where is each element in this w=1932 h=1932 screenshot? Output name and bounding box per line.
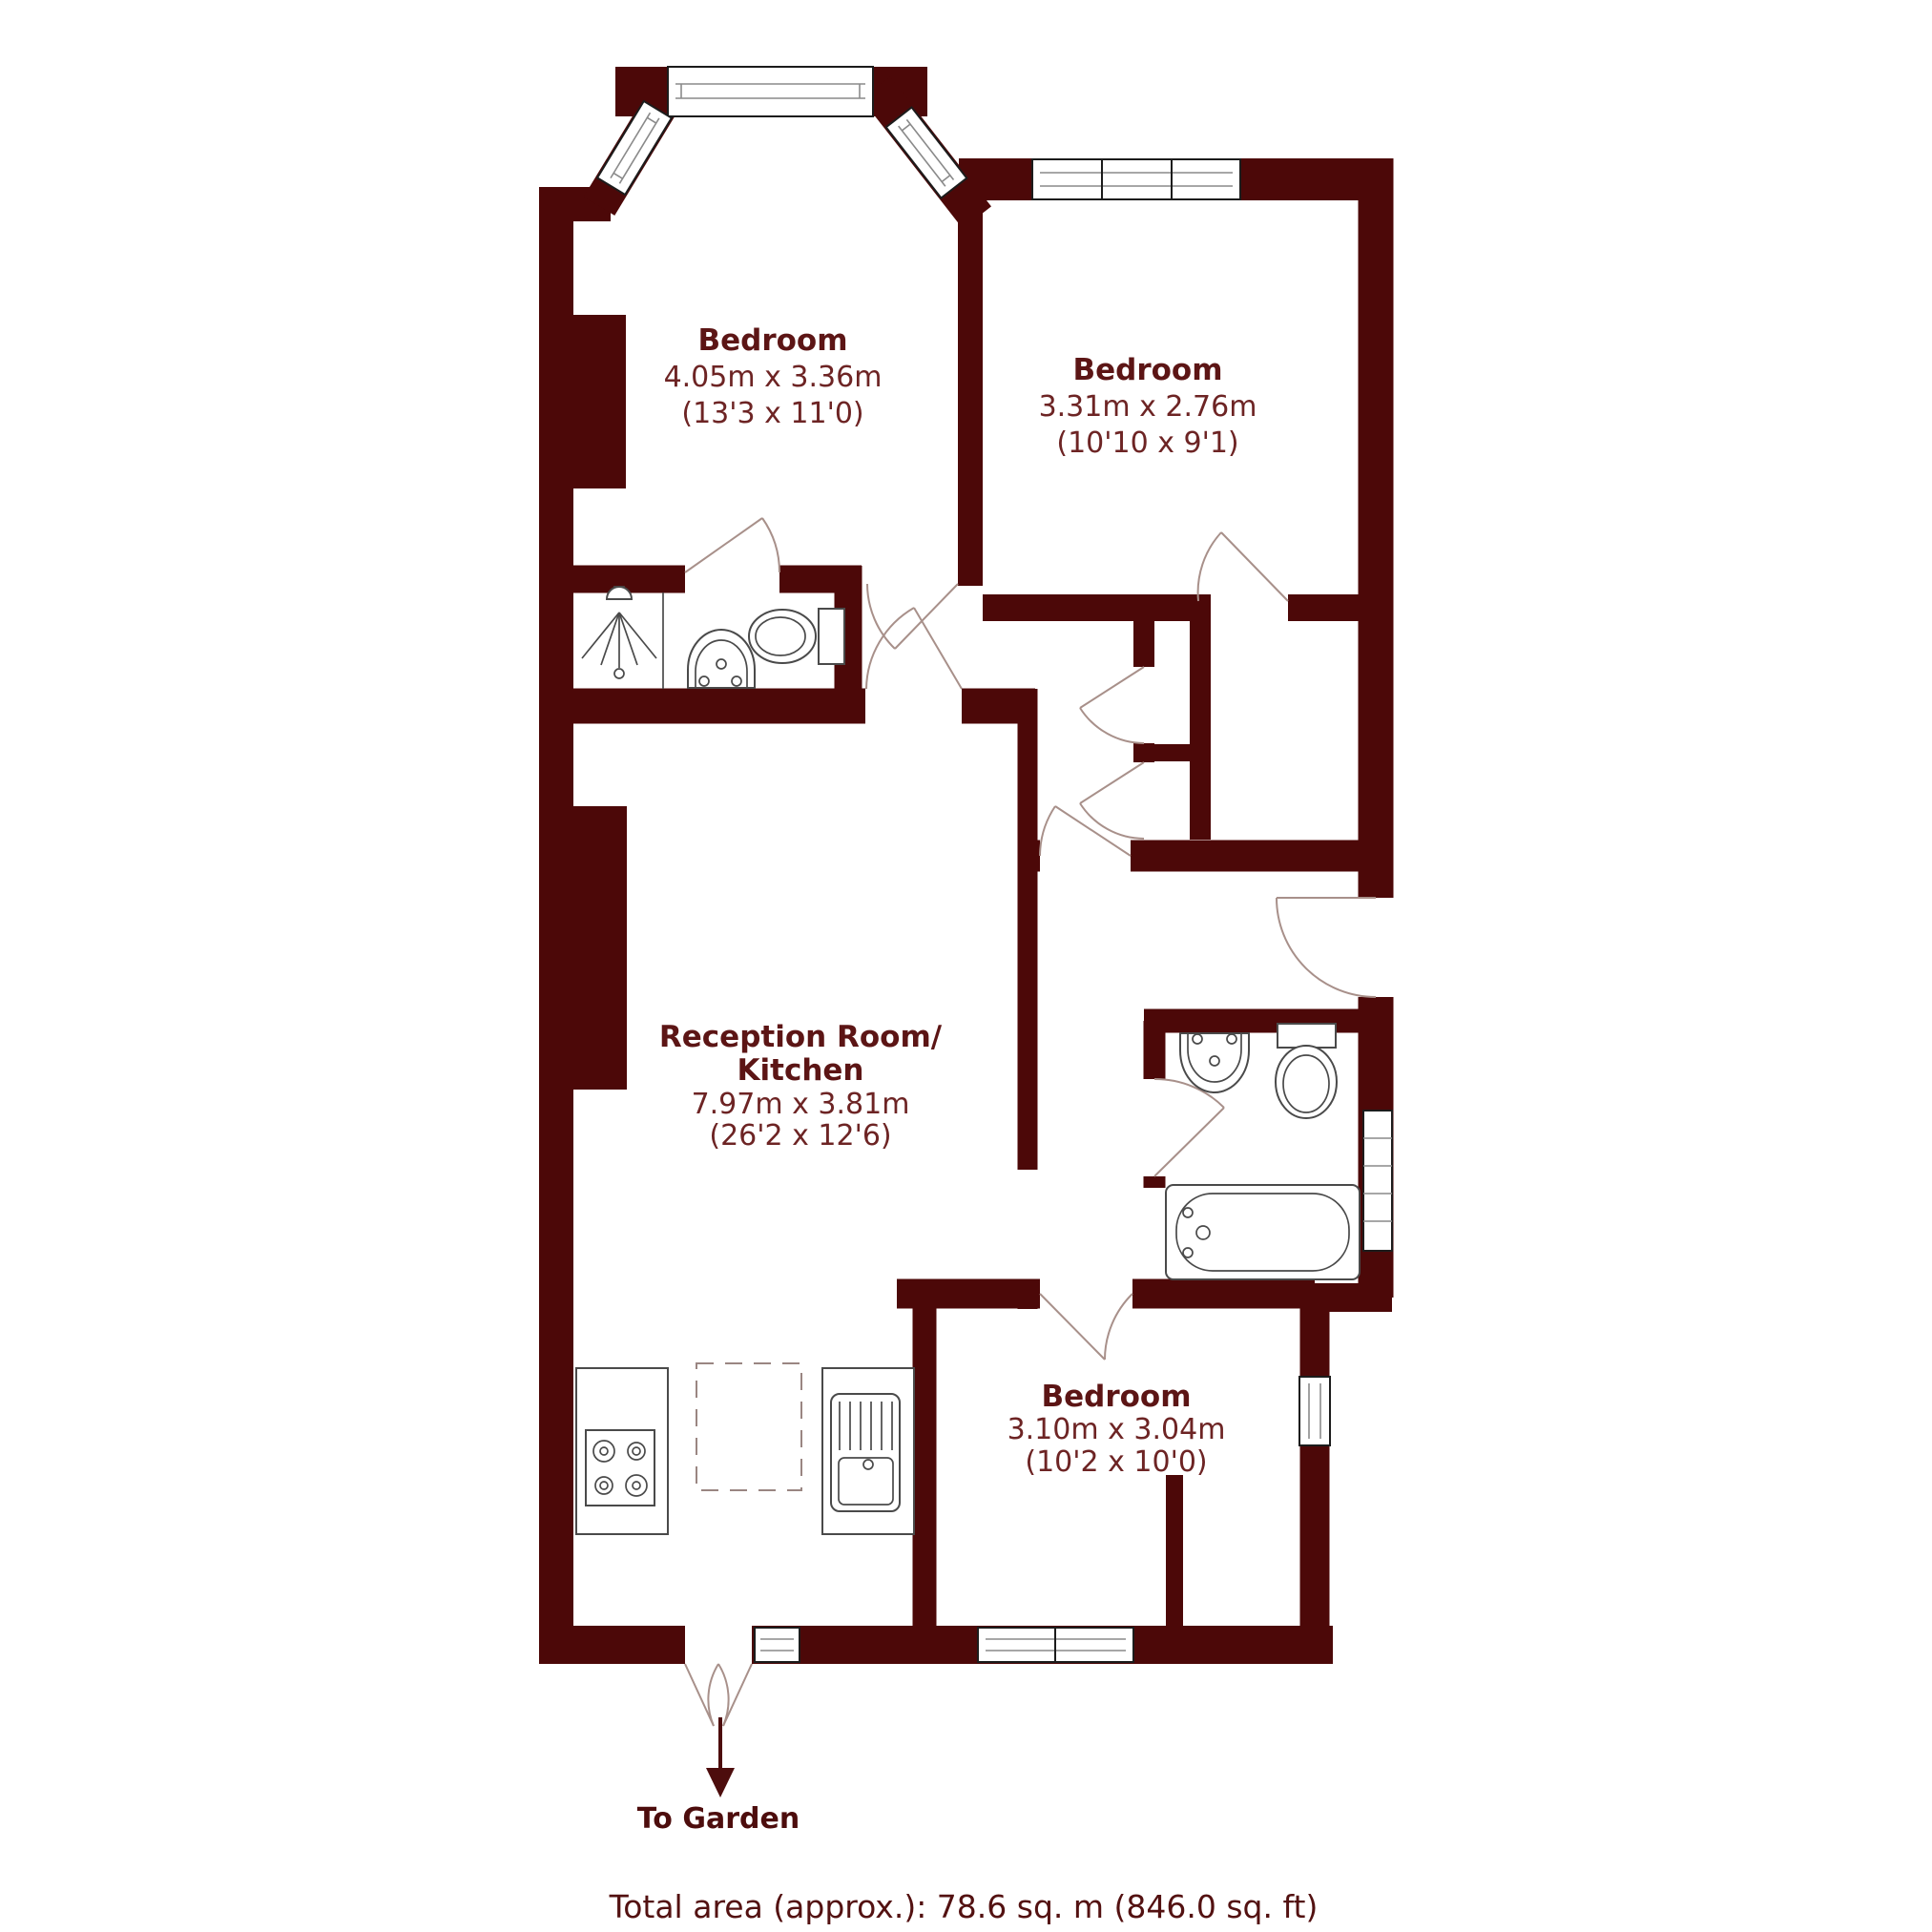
bathroom-door-arc	[1154, 1079, 1224, 1176]
floor-plan-page: Bedroom 4.05m x 3.36m (13'3 x 11'0) Bedr…	[0, 0, 1932, 1932]
bedroom3-side-window-icon	[1299, 1377, 1330, 1445]
island-outline	[696, 1363, 801, 1490]
fixtures	[576, 587, 1360, 1534]
room-name-line1: Reception Room/	[659, 1020, 943, 1054]
toilet-bathroom-icon	[1276, 1024, 1337, 1118]
sidelight-window-icon	[755, 1628, 800, 1662]
bedroom3-label: Bedroom 3.10m x 3.04m (10'2 x 10'0)	[1008, 1380, 1226, 1479]
floor-plan: Bedroom 4.05m x 3.36m (13'3 x 11'0) Bedr…	[0, 0, 1932, 1932]
room-dims-metric: 3.31m x 2.76m	[1039, 390, 1257, 424]
room-dims-imperial: (26'2 x 12'6)	[709, 1119, 891, 1153]
hall-vestibule-door-arc	[1040, 806, 1131, 856]
bay-window-top-icon	[668, 67, 873, 116]
basin-shower-room-icon	[688, 630, 755, 688]
room-dims-metric: 4.05m x 3.36m	[664, 361, 883, 394]
basin-bathroom-icon	[1180, 1033, 1249, 1092]
sink-icon	[831, 1394, 900, 1511]
room-name: Bedroom	[1041, 1380, 1191, 1414]
reception-hall-door-arc	[866, 608, 962, 689]
to-garden-label: To Garden	[637, 1802, 800, 1836]
bedroom3-bottom-window-icon	[978, 1628, 1133, 1662]
total-area-label: Total area (approx.): 78.6 sq. m (846.0 …	[609, 1888, 1319, 1925]
french-doors-arc	[685, 1664, 752, 1726]
room-name-line2: Kitchen	[737, 1053, 863, 1088]
room-dims-imperial: (10'10 x 9'1)	[1056, 426, 1238, 460]
bedroom2-door-arc	[1198, 532, 1288, 601]
bedroom2-label: Bedroom 3.31m x 2.76m (10'10 x 9'1)	[1039, 353, 1257, 460]
room-dims-metric: 7.97m x 3.81m	[692, 1088, 910, 1121]
room-name: Bedroom	[697, 323, 847, 358]
room-dims-metric: 3.10m x 3.04m	[1008, 1413, 1226, 1446]
entrance-door-arc	[1277, 898, 1376, 997]
room-dims-imperial: (10'2 x 10'0)	[1025, 1445, 1207, 1479]
radiator-icon	[1363, 1111, 1392, 1251]
shower-room-door-arc	[685, 518, 779, 572]
bath-icon	[1166, 1185, 1360, 1279]
chimney-breast-bedroom1	[539, 315, 626, 488]
bedroom1-label: Bedroom 4.05m x 3.36m (13'3 x 11'0)	[664, 323, 883, 430]
shower-icon	[582, 587, 656, 678]
bay-window-right-icon	[886, 107, 967, 197]
hob-icon	[586, 1430, 654, 1506]
garden-arrow-icon	[706, 1717, 735, 1797]
cupboard-door-arc-top	[1080, 667, 1144, 743]
chimney-breast-reception	[539, 806, 627, 1090]
bedroom3-door-arc	[1040, 1294, 1132, 1360]
reception-kitchen-label: Reception Room/ Kitchen 7.97m x 3.81m (2…	[659, 1020, 943, 1153]
cupboard-door-arc-bottom	[1080, 762, 1144, 839]
toilet-shower-room-icon	[749, 609, 844, 664]
bedroom2-window-icon	[1032, 159, 1240, 199]
room-dims-imperial: (13'3 x 11'0)	[681, 397, 863, 430]
room-name: Bedroom	[1072, 353, 1222, 387]
bay-window-left-icon	[597, 101, 672, 195]
